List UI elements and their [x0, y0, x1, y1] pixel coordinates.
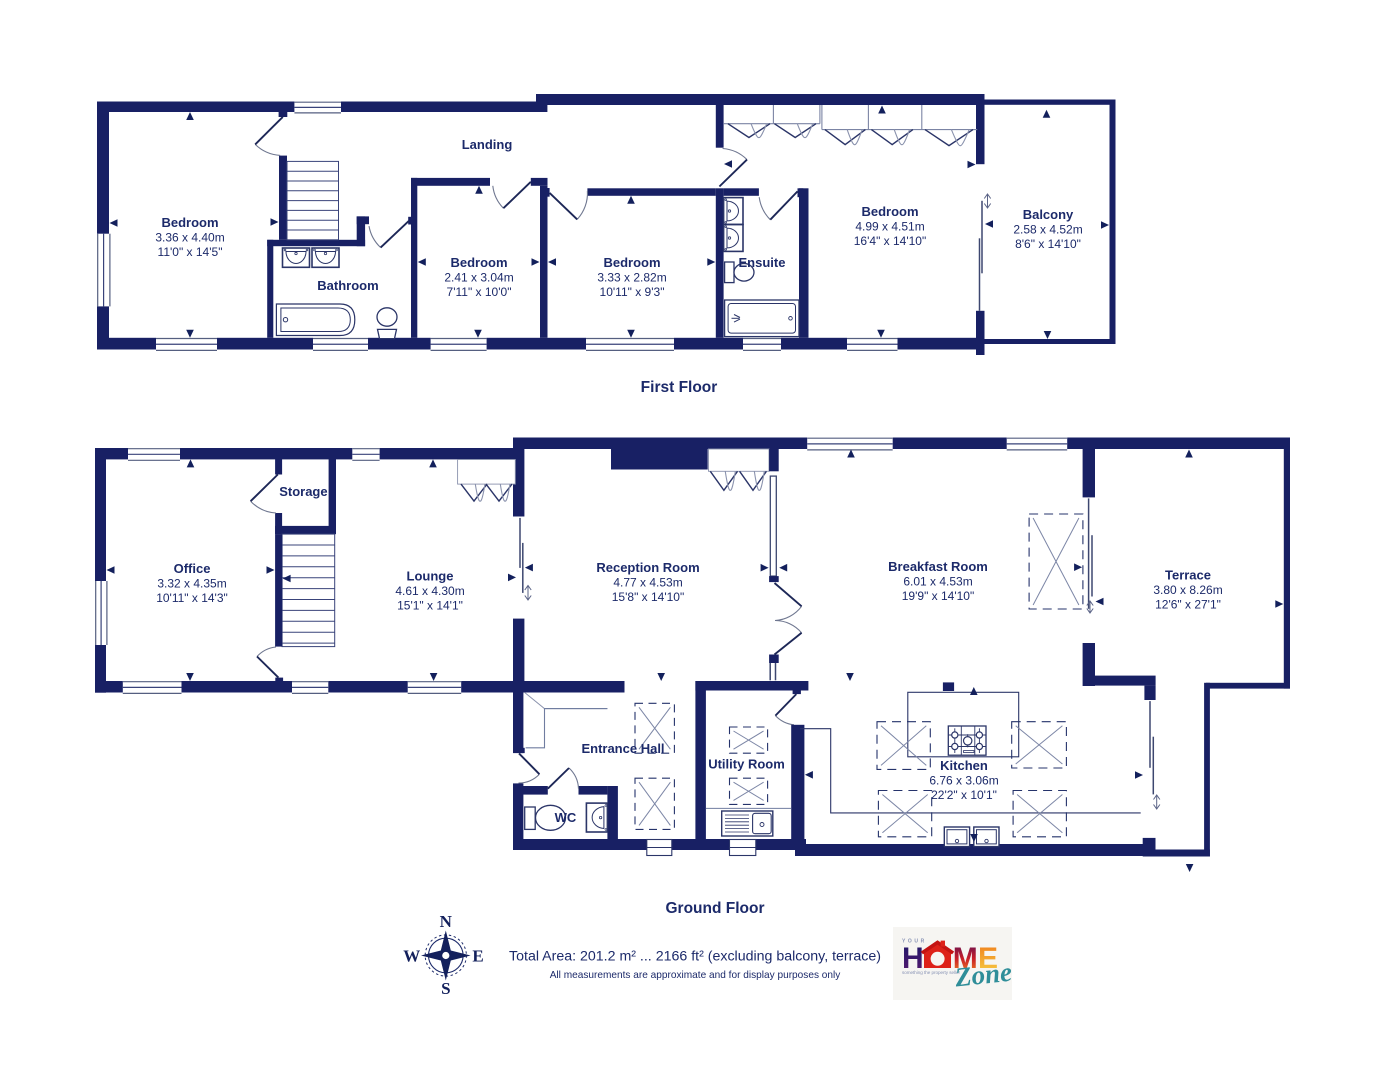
svg-text:S: S: [441, 979, 450, 998]
svg-text:19'9" x 14'10": 19'9" x 14'10": [902, 589, 975, 603]
svg-text:Bedroom: Bedroom: [861, 204, 918, 219]
svg-text:something the property seller: something the property seller: [902, 970, 960, 975]
svg-text:Bedroom: Bedroom: [603, 255, 660, 270]
svg-text:3.33 x 2.82m: 3.33 x 2.82m: [597, 271, 666, 285]
svg-text:4.99 x 4.51m: 4.99 x 4.51m: [855, 220, 924, 234]
svg-text:Balcony: Balcony: [1023, 207, 1074, 222]
svg-text:3.36 x 4.40m: 3.36 x 4.40m: [155, 231, 224, 245]
svg-text:2.41 x 3.04m: 2.41 x 3.04m: [444, 271, 513, 285]
svg-text:First Floor: First Floor: [641, 379, 718, 396]
svg-text:Breakfast Room: Breakfast Room: [888, 559, 988, 574]
svg-text:Kitchen: Kitchen: [940, 758, 988, 773]
svg-text:Lounge: Lounge: [407, 569, 454, 584]
svg-text:Office: Office: [174, 561, 211, 576]
svg-text:2.58 x 4.52m: 2.58 x 4.52m: [1013, 223, 1082, 237]
svg-text:Total Area: 201.2 m² ... 2166: Total Area: 201.2 m² ... 2166 ft² (exclu…: [509, 948, 881, 964]
svg-text:6.01 x 4.53m: 6.01 x 4.53m: [903, 575, 972, 589]
svg-text:W: W: [403, 947, 420, 966]
svg-text:4.77 x 4.53m: 4.77 x 4.53m: [613, 576, 682, 590]
svg-text:Landing: Landing: [462, 137, 513, 152]
svg-text:6.76 x 3.06m: 6.76 x 3.06m: [929, 774, 998, 788]
svg-text:Bedroom: Bedroom: [450, 255, 507, 270]
svg-text:WC: WC: [555, 810, 577, 825]
svg-text:12'6" x 27'1": 12'6" x 27'1": [1155, 598, 1221, 612]
svg-text:8'6" x 14'10": 8'6" x 14'10": [1015, 237, 1081, 251]
svg-text:E: E: [472, 947, 483, 966]
svg-text:Utility Room: Utility Room: [708, 757, 785, 772]
svg-text:Ensuite: Ensuite: [739, 255, 786, 270]
svg-text:Bathroom: Bathroom: [317, 278, 378, 293]
svg-text:16'4" x 14'10": 16'4" x 14'10": [854, 234, 927, 248]
svg-text:7'11" x 10'0": 7'11" x 10'0": [447, 285, 512, 299]
svg-text:3.32 x 4.35m: 3.32 x 4.35m: [157, 577, 226, 591]
svg-text:N: N: [440, 912, 453, 931]
svg-text:3.80 x 8.26m: 3.80 x 8.26m: [1153, 583, 1222, 597]
svg-text:Storage: Storage: [279, 484, 327, 499]
svg-text:Reception Room: Reception Room: [596, 560, 699, 575]
svg-text:All measurements are approxima: All measurements are approximate and for…: [550, 970, 842, 981]
svg-text:Entrance Hall: Entrance Hall: [581, 741, 664, 756]
svg-text:Bedroom: Bedroom: [161, 215, 218, 230]
svg-text:15'8" x 14'10": 15'8" x 14'10": [612, 590, 685, 604]
svg-text:4.61 x 4.30m: 4.61 x 4.30m: [395, 584, 464, 598]
svg-text:10'11" x 9'3": 10'11" x 9'3": [600, 285, 665, 299]
svg-text:10'11" x 14'3": 10'11" x 14'3": [156, 591, 228, 605]
svg-text:Zone: Zone: [952, 957, 1013, 993]
svg-text:15'1" x 14'1": 15'1" x 14'1": [397, 599, 463, 613]
svg-text:22'2" x 10'1": 22'2" x 10'1": [931, 788, 997, 802]
svg-text:Terrace: Terrace: [1165, 568, 1211, 583]
svg-text:11'0" x 14'5": 11'0" x 14'5": [158, 245, 223, 259]
svg-text:Ground Floor: Ground Floor: [665, 900, 764, 917]
